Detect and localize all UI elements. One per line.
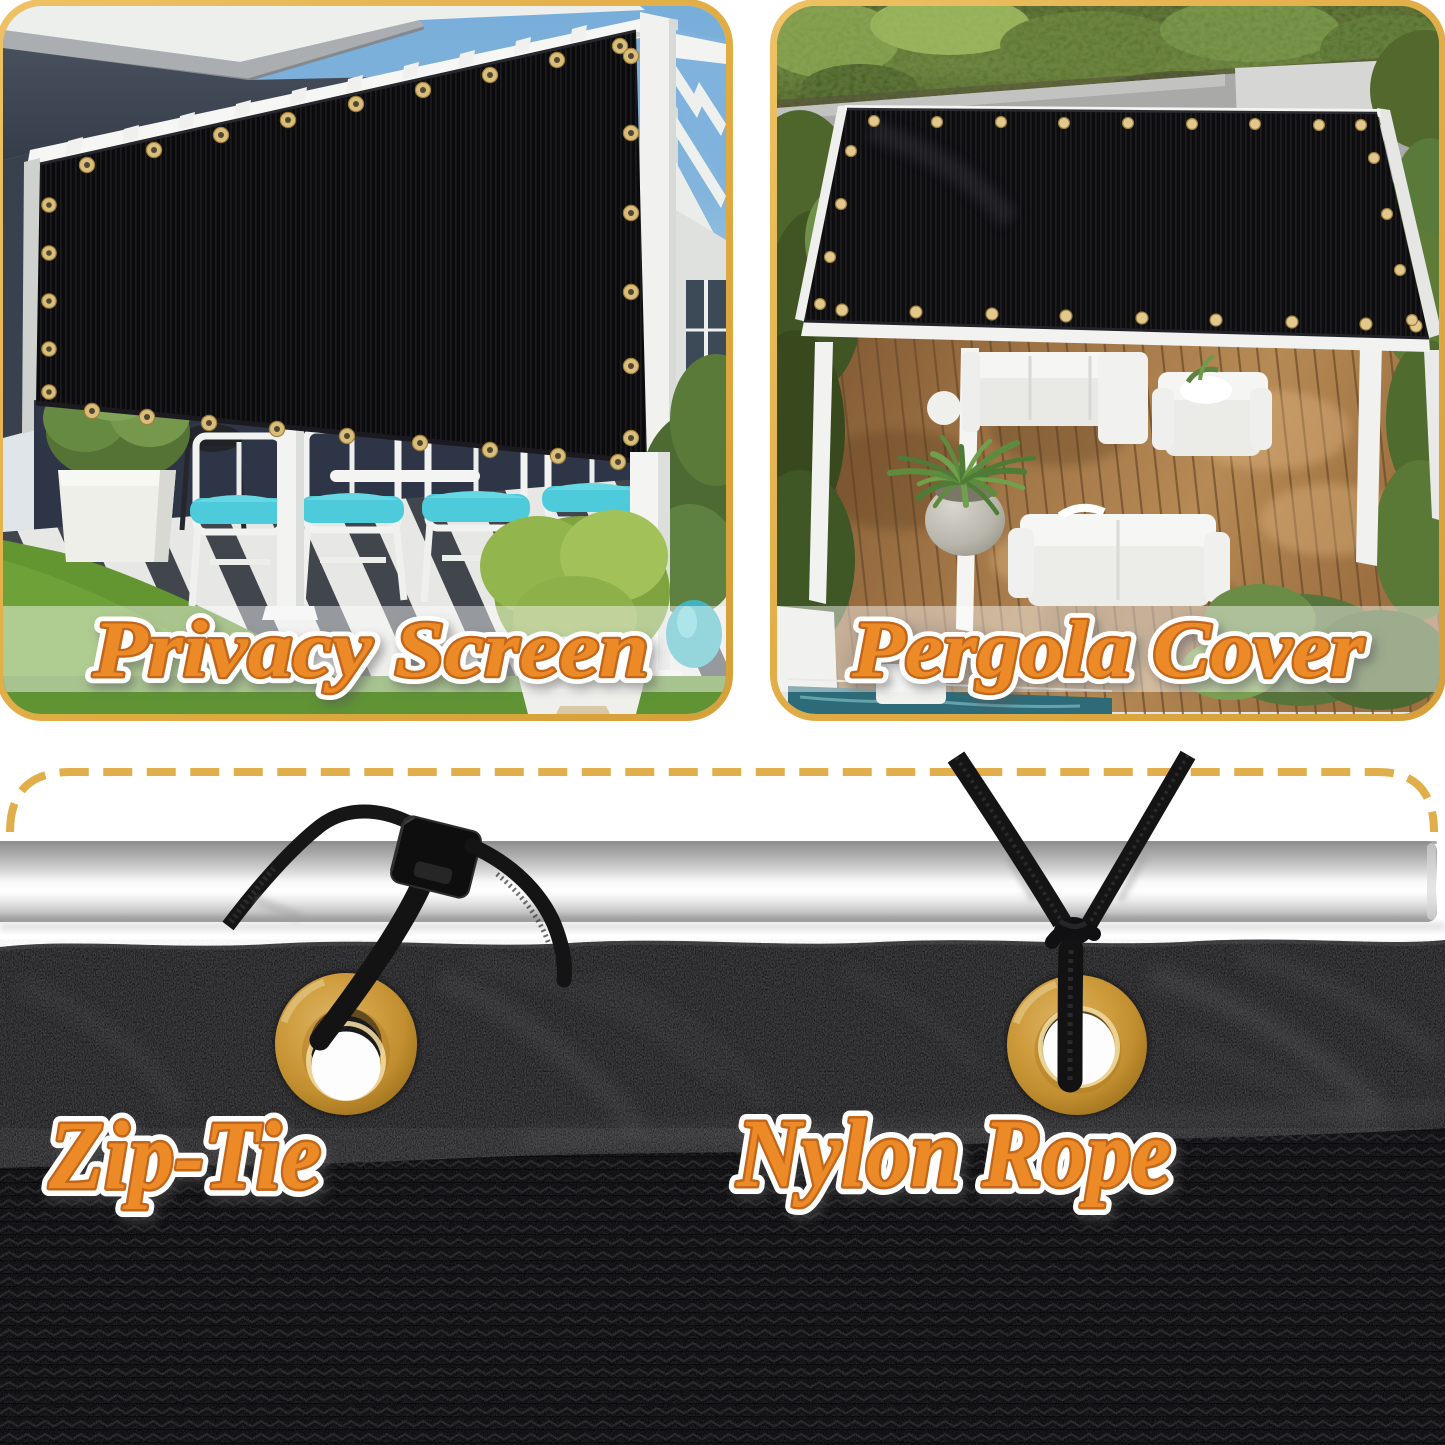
svg-text:Privacy Screen: Privacy Screen [92,606,649,694]
svg-text:Nylon Rope: Nylon Rope [736,1100,1171,1207]
svg-text:Pergola Cover: Pergola Cover [851,606,1365,694]
svg-text:Zip-Tie: Zip-Tie [48,1102,321,1209]
